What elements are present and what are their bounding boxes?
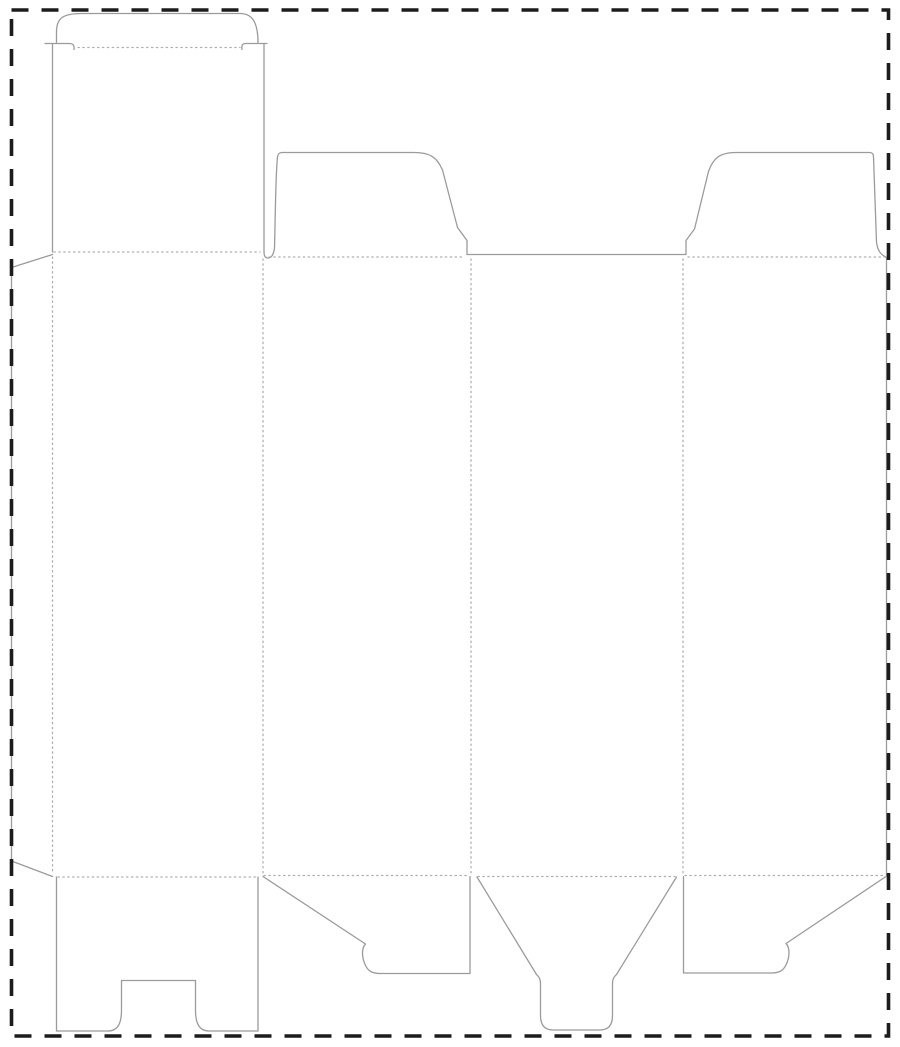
- cut-lines-group: [12, 14, 887, 1032]
- tuck-flap-outline-cut: [57, 14, 259, 44]
- tuck-lock-slit-right-cut: [242, 44, 267, 50]
- fold-lines-group: [53, 48, 885, 878]
- glue-flap-outline-cut: [12, 255, 53, 877]
- dust-flap-right-outline-cut: [686, 153, 887, 258]
- dust-flap-left-outline-cut: [264, 153, 467, 259]
- bottom-flap-left-outline-cut: [263, 877, 470, 974]
- tuck-lock-slit-left-cut: [45, 44, 74, 50]
- bottom-lock-panel-outline-cut: [57, 877, 259, 1031]
- bottom-tongue-outline-cut: [477, 877, 677, 1030]
- sheet-boundary-group: [12, 10, 889, 1036]
- sheet-boundary-dashed-border: [12, 10, 889, 1036]
- template-sheet: [0, 0, 900, 1047]
- bottom-flap-right-outline-cut: [684, 877, 887, 974]
- dieline-canvas: [0, 0, 900, 1047]
